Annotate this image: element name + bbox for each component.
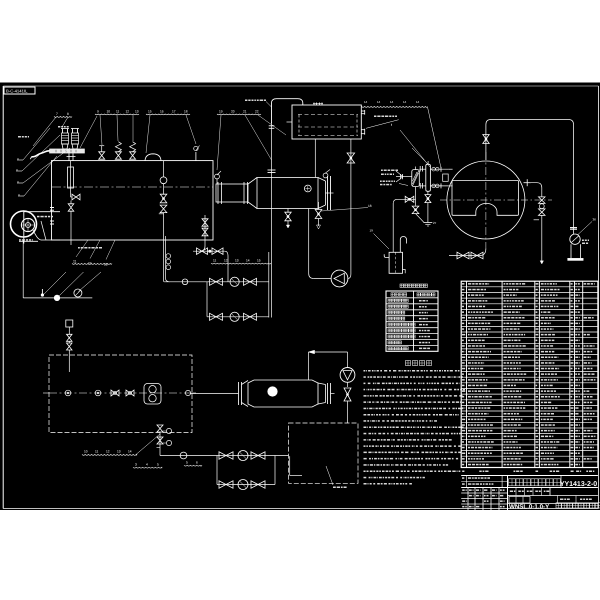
svg-text:B-C-4141IL: B-C-4141IL (6, 89, 28, 94)
svg-text:17: 17 (172, 110, 176, 114)
svg-text:9: 9 (97, 110, 99, 114)
svg-text:3: 3 (135, 463, 137, 467)
svg-text:13: 13 (117, 450, 121, 454)
svg-text:WNSL.0-1.0-Y: WNSL.0-1.0-Y (509, 503, 550, 510)
svg-text:5: 5 (186, 461, 188, 465)
svg-text:10: 10 (107, 110, 111, 114)
svg-text:19: 19 (219, 110, 223, 114)
svg-text:12: 12 (106, 450, 110, 454)
svg-text:14: 14 (377, 100, 381, 104)
svg-text:14: 14 (403, 100, 407, 104)
svg-text:15: 15 (148, 110, 152, 114)
svg-text:36: 36 (593, 218, 597, 222)
svg-text:18: 18 (368, 204, 372, 208)
svg-text:13: 13 (235, 259, 239, 263)
svg-text:19: 19 (370, 229, 374, 233)
svg-text:18: 18 (184, 110, 188, 114)
svg-text:14: 14 (246, 259, 250, 263)
svg-text:6: 6 (196, 461, 198, 465)
svg-text:11: 11 (95, 450, 99, 454)
svg-text:8: 8 (67, 112, 69, 116)
svg-text:14: 14 (390, 100, 394, 104)
svg-text:4: 4 (146, 463, 148, 467)
svg-text:20: 20 (231, 110, 235, 114)
svg-text:14: 14 (128, 450, 132, 454)
svg-text:13: 13 (135, 110, 139, 114)
svg-text:7: 7 (56, 112, 58, 116)
svg-text:12: 12 (126, 110, 130, 114)
svg-text:YY1413-2-0: YY1413-2-0 (560, 481, 597, 488)
svg-text:5: 5 (157, 463, 159, 467)
svg-text:21: 21 (73, 260, 77, 264)
svg-text:15: 15 (257, 259, 261, 263)
svg-text:14: 14 (364, 100, 368, 104)
svg-text:11: 11 (213, 259, 217, 263)
svg-text:27: 27 (433, 221, 437, 225)
svg-text:14: 14 (416, 100, 420, 104)
svg-text:22: 22 (255, 110, 259, 114)
svg-text:16: 16 (160, 110, 164, 114)
svg-text:12: 12 (224, 259, 228, 263)
svg-text:11: 11 (116, 110, 120, 114)
svg-text:10: 10 (84, 450, 88, 454)
svg-text:21: 21 (243, 110, 247, 114)
